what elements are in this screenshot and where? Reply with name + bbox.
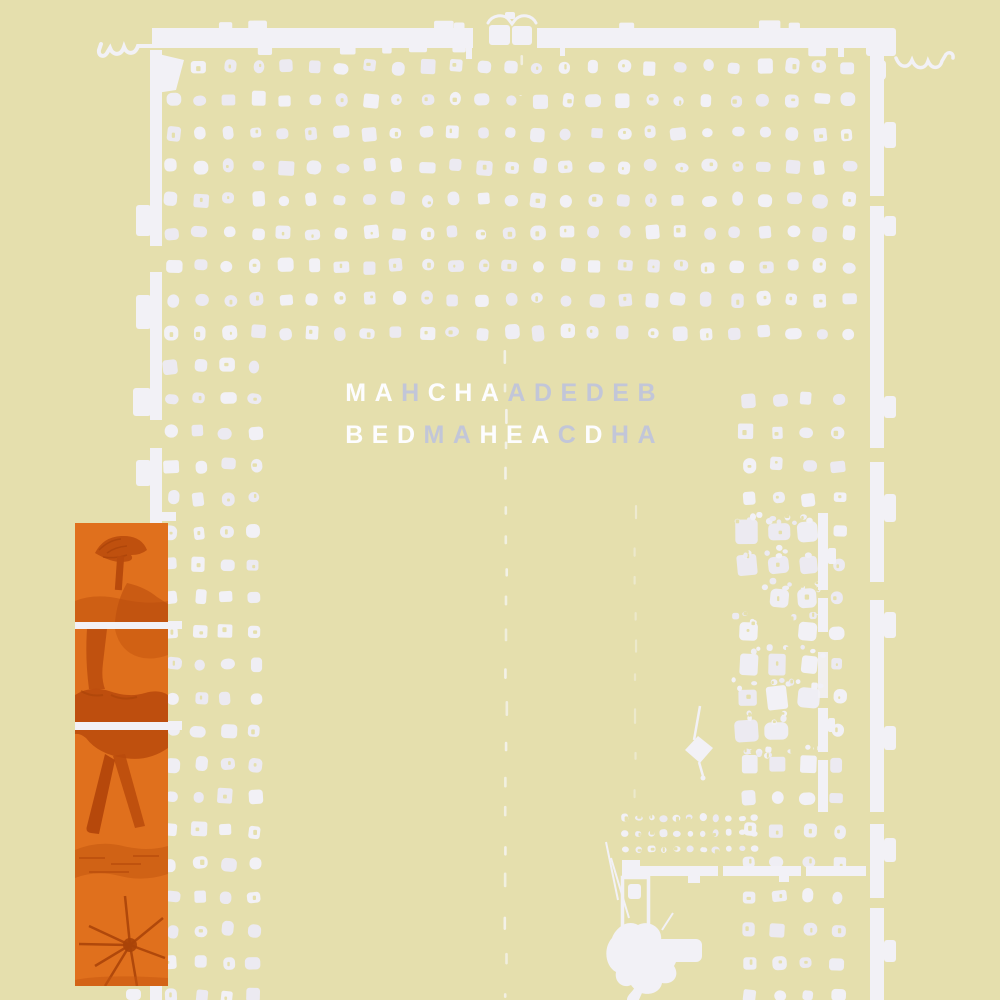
title-letter: H <box>454 379 481 407</box>
title-letter: H <box>479 421 506 449</box>
title-letter: E <box>506 421 531 449</box>
wall-outline <box>75 12 953 1000</box>
orange-tree-photo-bottom <box>75 730 168 986</box>
title-letter: M <box>424 421 453 449</box>
kite-marker-icon <box>685 706 713 781</box>
title-letter: M <box>345 379 374 407</box>
orange-tree-photo-middle <box>75 629 168 722</box>
photo-strip <box>75 523 168 986</box>
title-letter: A <box>531 421 558 449</box>
title-letter: H <box>611 421 638 449</box>
halftone-dot-field <box>161 57 858 1000</box>
album-title: MAHCHAADEDEB BEDMAHEACDHA <box>318 372 664 456</box>
title-letter: A <box>481 379 508 407</box>
title-letter: A <box>375 379 402 407</box>
title-letter: A <box>637 421 664 449</box>
left-scroll-ornament-icon <box>99 44 152 56</box>
title-letter: A <box>453 421 480 449</box>
title-line-2: BEDMAHEACDHA <box>318 414 664 456</box>
title-letter: E <box>561 379 586 407</box>
title-letter: E <box>372 421 397 449</box>
right-scroll-ornament-icon <box>896 53 953 68</box>
title-letter: D <box>586 379 613 407</box>
title-letter: A <box>507 379 534 407</box>
windmill-icon <box>606 842 702 1000</box>
title-letter: H <box>401 379 428 407</box>
orange-tree-photo-top <box>75 523 168 622</box>
title-letter: E <box>612 379 637 407</box>
title-letter: B <box>345 421 372 449</box>
bottom-structures <box>126 842 866 1000</box>
title-letter: D <box>534 379 561 407</box>
album-art: MAHCHAADEDEB BEDMAHEACDHA <box>0 0 1000 1000</box>
title-letter: D <box>584 421 611 449</box>
title-line-1: MAHCHAADEDEB <box>318 372 664 414</box>
title-letter: C <box>428 379 455 407</box>
title-letter: D <box>397 421 424 449</box>
fold-dashed-line <box>504 55 638 998</box>
title-letter: B <box>637 379 664 407</box>
title-letter: C <box>558 421 585 449</box>
